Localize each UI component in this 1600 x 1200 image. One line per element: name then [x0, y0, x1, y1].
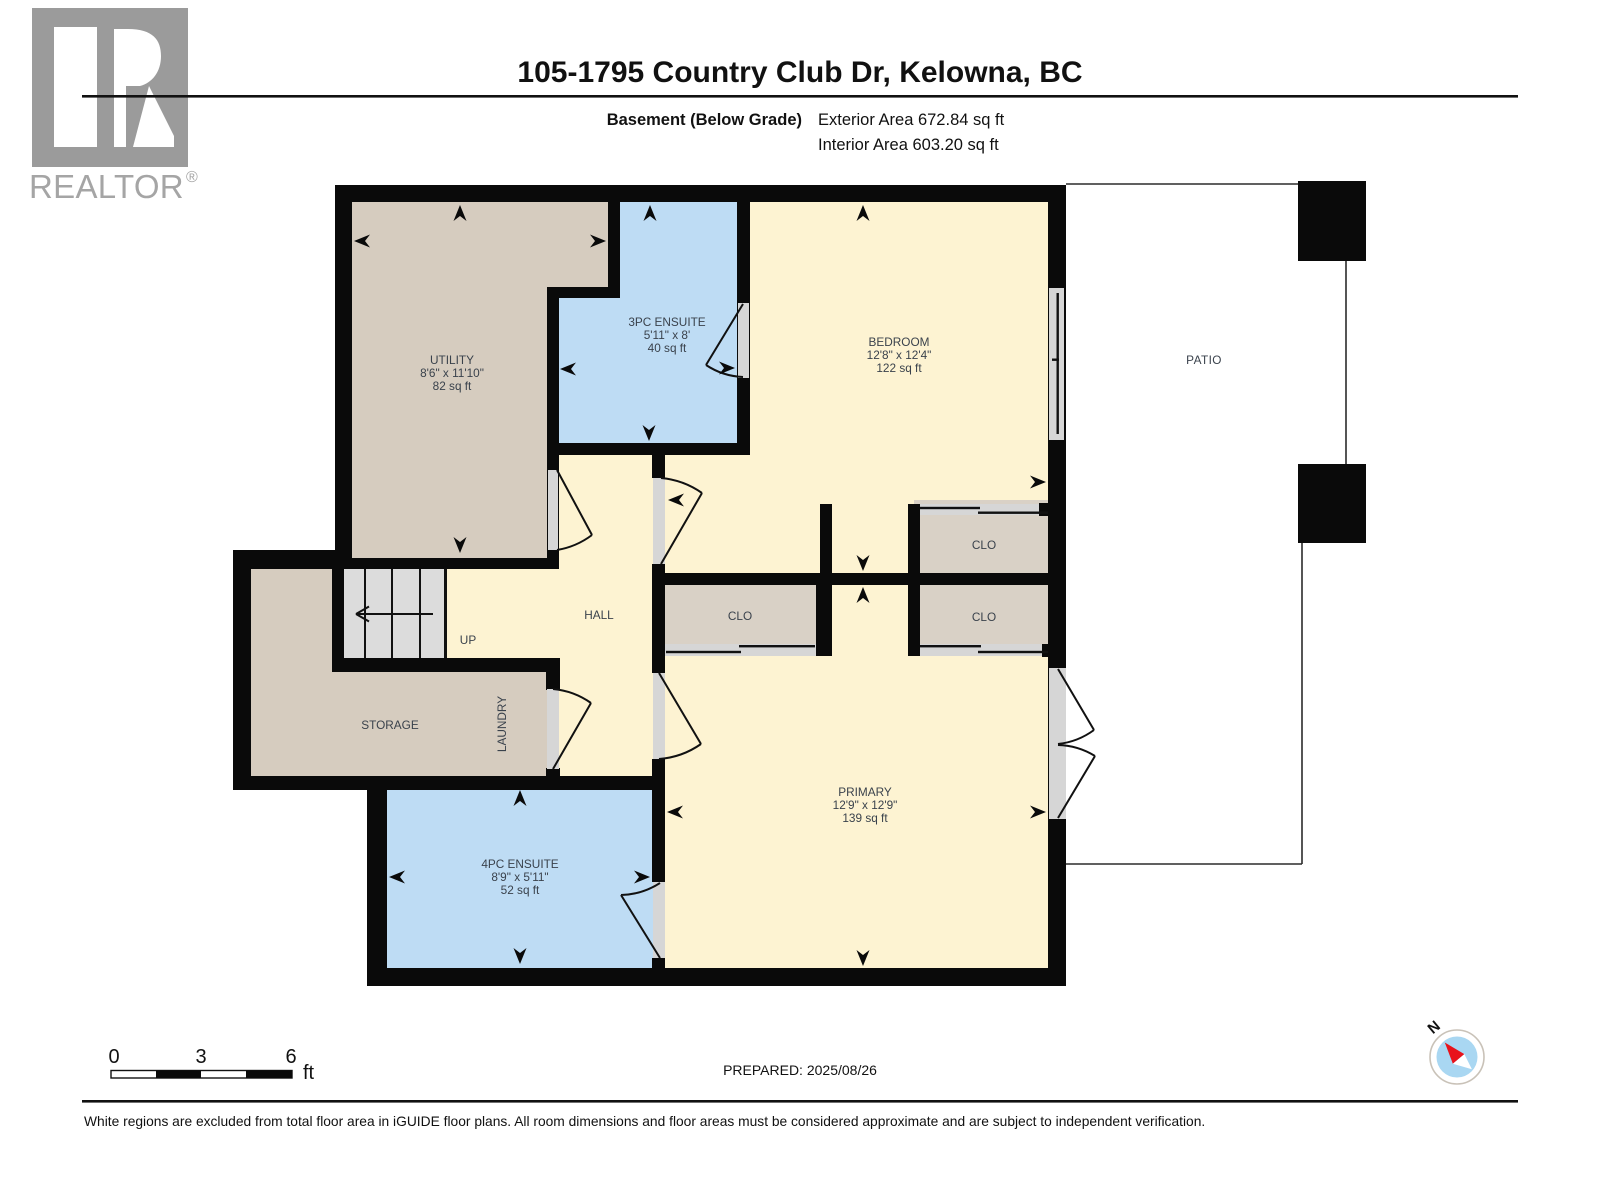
svg-text:8'6" x 11'10": 8'6" x 11'10" — [420, 366, 484, 380]
svg-text:8'9" x 5'11": 8'9" x 5'11" — [491, 870, 548, 884]
svg-text:BEDROOM: BEDROOM — [869, 335, 930, 349]
svg-text:4PC ENSUITE: 4PC ENSUITE — [481, 857, 558, 871]
svg-text:3PC ENSUITE: 3PC ENSUITE — [628, 315, 705, 329]
svg-text:ft: ft — [303, 1062, 315, 1084]
svg-text:82 sq ft: 82 sq ft — [433, 379, 472, 393]
svg-text:105-1795 Country Club Dr, Kelo: 105-1795 Country Club Dr, Kelowna, BC — [517, 56, 1082, 89]
svg-text:STORAGE: STORAGE — [361, 718, 419, 732]
svg-text:12'9" x 12'9": 12'9" x 12'9" — [833, 798, 898, 812]
svg-text:139 sq ft: 139 sq ft — [842, 811, 888, 825]
svg-text:HALL: HALL — [584, 608, 614, 622]
svg-text:PATIO: PATIO — [1186, 353, 1222, 367]
svg-text:6: 6 — [285, 1046, 296, 1068]
svg-text:0: 0 — [108, 1046, 119, 1068]
svg-text:CLO: CLO — [728, 609, 752, 623]
svg-text:®: ® — [186, 169, 198, 186]
svg-text:3: 3 — [195, 1046, 206, 1068]
svg-text:Interior Area 603.20 sq ft: Interior Area 603.20 sq ft — [818, 136, 999, 154]
svg-text:REALTOR: REALTOR — [29, 168, 184, 205]
svg-text:Exterior Area 672.84 sq ft: Exterior Area 672.84 sq ft — [818, 111, 1005, 129]
svg-text:White regions are excluded fro: White regions are excluded from total fl… — [84, 1114, 1205, 1129]
svg-text:LAUNDRY: LAUNDRY — [495, 696, 509, 752]
svg-text:CLO: CLO — [972, 610, 996, 624]
svg-text:52 sq ft: 52 sq ft — [501, 883, 540, 897]
svg-text:PRIMARY: PRIMARY — [838, 785, 892, 799]
svg-text:UP: UP — [460, 633, 477, 647]
svg-text:UTILITY: UTILITY — [430, 353, 474, 367]
svg-text:5'11" x 8': 5'11" x 8' — [644, 328, 691, 342]
svg-text:CLO: CLO — [972, 538, 996, 552]
svg-text:40 sq ft: 40 sq ft — [648, 341, 687, 355]
svg-text:12'8" x 12'4": 12'8" x 12'4" — [867, 348, 932, 362]
svg-text:PREPARED: 2025/08/26: PREPARED: 2025/08/26 — [723, 1062, 877, 1078]
svg-text:122 sq ft: 122 sq ft — [876, 361, 922, 375]
svg-text:Basement (Below Grade): Basement (Below Grade) — [607, 111, 802, 129]
